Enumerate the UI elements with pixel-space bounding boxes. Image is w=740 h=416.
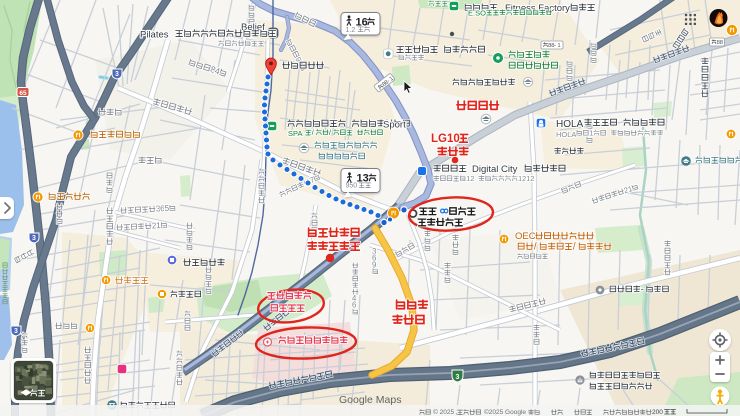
- svg-text:6: 6: [352, 301, 356, 310]
- svg-text:© 2025 ,: © 2025 ,: [433, 408, 458, 416]
- svg-text:HOLA: HOLA: [556, 119, 584, 130]
- svg-text:3: 3: [32, 235, 36, 242]
- svg-text:Digital City: Digital City: [472, 164, 518, 175]
- svg-text:2: 2: [530, 174, 534, 183]
- svg-text:1: 1: [156, 220, 162, 230]
- svg-text:200: 200: [652, 409, 663, 416]
- svg-text:LG10: LG10: [431, 133, 460, 145]
- svg-text:©2025 Google: ©2025 Google: [484, 408, 526, 416]
- svg-text:3: 3: [115, 71, 119, 78]
- svg-text:9: 9: [372, 260, 376, 269]
- svg-text:2: 2: [470, 174, 474, 183]
- svg-text:/: /: [534, 242, 537, 253]
- svg-text:1: 1: [557, 43, 560, 49]
- svg-text:/: /: [573, 242, 576, 253]
- svg-text:65: 65: [19, 90, 27, 97]
- svg-text:HOLA: HOLA: [556, 130, 576, 139]
- svg-text:3: 3: [14, 328, 18, 335]
- svg-text:Google Maps: Google Maps: [339, 394, 401, 406]
- svg-text:1: 1: [589, 129, 593, 138]
- svg-text:SPA: SPA: [288, 129, 302, 138]
- svg-text:OEC: OEC: [515, 231, 536, 242]
- svg-text:Sport: Sport: [383, 120, 406, 131]
- svg-text:950: 950: [346, 183, 358, 190]
- svg-text:-: -: [641, 284, 644, 294]
- svg-text:5: 5: [164, 203, 170, 213]
- svg-text:3: 3: [456, 374, 460, 381]
- svg-text:-: -: [554, 43, 556, 49]
- svg-text:Pilates: Pilates: [140, 30, 169, 41]
- svg-text:E.SO: E.SO: [468, 9, 486, 18]
- svg-text:1.2: 1.2: [346, 27, 356, 34]
